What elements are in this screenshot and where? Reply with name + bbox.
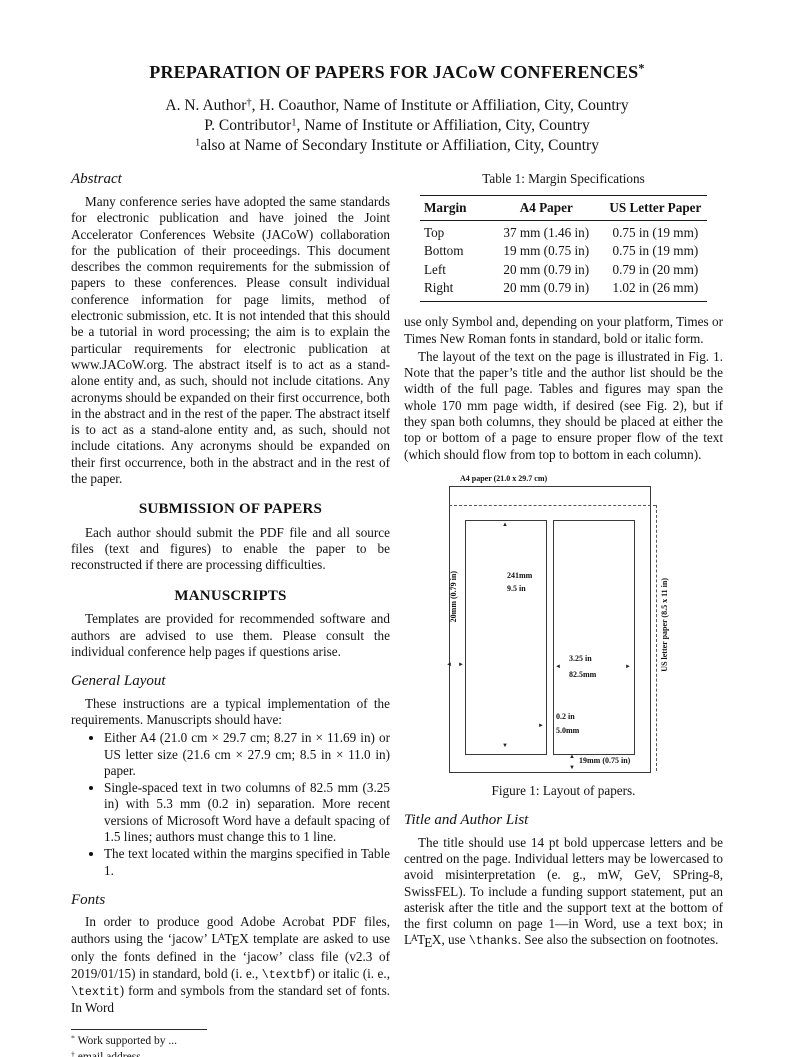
- table-cell: 19 mm (0.75 in): [489, 242, 604, 260]
- footnote-funding: * Work supported by ...: [71, 1033, 390, 1050]
- paper-title: PREPARATION OF PAPERS FOR JACoW CONFEREN…: [0, 62, 794, 83]
- submission-paragraph: Each author should submit the PDF file a…: [71, 525, 390, 574]
- column-width-mm-label: 82.5mm: [569, 669, 596, 682]
- manuscripts-paragraph: Templates are provided for recommended s…: [71, 611, 390, 660]
- right-column: Table 1: Margin Specifications MarginA4 …: [404, 170, 723, 1057]
- figure1-caption: Figure 1: Layout of papers.: [404, 783, 723, 799]
- table-row: Bottom19 mm (0.75 in)0.75 in (19 mm): [420, 242, 707, 260]
- left-text-column-box: [465, 520, 547, 755]
- page-layout-paragraph: The layout of the text on the page is il…: [404, 349, 723, 463]
- general-layout-intro: These instructions are a typical impleme…: [71, 696, 390, 729]
- table-cell: 0.79 in (20 mm): [604, 261, 707, 279]
- table-cell: 0.75 in (19 mm): [604, 221, 707, 243]
- column-gap-in-label: 0.2 in: [556, 711, 575, 724]
- bottom-margin-label: 19mm (0.75 in): [579, 755, 630, 768]
- title-block: PREPARATION OF PAPERS FOR JACoW CONFEREN…: [0, 0, 794, 156]
- footnote-rule: [71, 1029, 207, 1030]
- title-author-list-paragraph: The title should use 14 pt bold uppercas…: [404, 835, 723, 951]
- two-column-body: Abstract Many conference series have ado…: [0, 156, 794, 1057]
- left-margin-left-arrow-icon: ◄: [446, 662, 452, 668]
- table-row: Right20 mm (0.79 in)1.02 in (26 mm): [420, 279, 707, 302]
- table-header: Margin: [420, 195, 489, 220]
- fonts-paragraph: In order to produce good Adobe Acrobat P…: [71, 914, 390, 1016]
- table-cell: Bottom: [420, 242, 489, 260]
- margin-specifications-table: MarginA4 PaperUS Letter PaperTop37 mm (1…: [420, 195, 707, 302]
- table-cell: 0.75 in (19 mm): [604, 242, 707, 260]
- list-item: Either A4 (21.0 cm × 29.7 cm; 8.27 in × …: [104, 730, 390, 779]
- abstract-paragraph: Many conference series have adopted the …: [71, 194, 390, 487]
- latex-logo: LATEX: [211, 931, 248, 946]
- up-arrow-icon: ▲: [502, 522, 508, 528]
- figure1: A4 paper (21.0 x 29.7 cm) ▲ ▼ 241mm 9.5 …: [404, 473, 723, 799]
- figure1-diagram: A4 paper (21.0 x 29.7 cm) ▲ ▼ 241mm 9.5 …: [404, 473, 723, 775]
- column-width-in-label: 3.25 in: [569, 653, 592, 666]
- paper-page: PREPARATION OF PAPERS FOR JACoW CONFEREN…: [0, 0, 794, 1057]
- column-height-mm-label: 241mm: [507, 570, 532, 583]
- symbol-fonts-paragraph: use only Symbol and, depending on your p…: [404, 314, 723, 347]
- down-arrow-icon: ▼: [502, 743, 508, 749]
- latex-logo: LATEX: [404, 932, 441, 947]
- us-letter-paper-label: US letter paper (8.5 x 11 in): [661, 578, 669, 672]
- table-header: US Letter Paper: [604, 195, 707, 220]
- table-cell: 37 mm (1.46 in): [489, 221, 604, 243]
- fonts-heading: Fonts: [71, 891, 390, 910]
- left-column: Abstract Many conference series have ado…: [71, 170, 390, 1057]
- submission-heading: SUBMISSION OF PAPERS: [71, 500, 390, 519]
- table-cell: Right: [420, 279, 489, 302]
- table-row: Left20 mm (0.79 in)0.79 in (20 mm): [420, 261, 707, 279]
- table-cell: Left: [420, 261, 489, 279]
- list-item: The text located within the margins spec…: [104, 846, 390, 879]
- us-letter-right-dashed-line: [656, 505, 657, 771]
- author-line-2: P. Contributor1, Name of Institute or Af…: [0, 116, 794, 136]
- general-layout-bullet-list: Either A4 (21.0 cm × 29.7 cm; 8.27 in × …: [71, 730, 390, 879]
- bottom-margin-up-arrow-icon: ▲: [569, 754, 575, 760]
- bottom-margin-down-arrow-icon: ▼: [569, 765, 575, 771]
- table1-caption: Table 1: Margin Specifications: [404, 171, 723, 187]
- column-gap-arrow-icon: ►: [538, 723, 544, 729]
- title-author-list-heading: Title and Author List: [404, 811, 723, 830]
- footnote-email: † email address: [71, 1049, 390, 1057]
- a4-paper-label: A4 paper (21.0 x 29.7 cm): [460, 473, 547, 486]
- abstract-heading: Abstract: [71, 170, 390, 189]
- left-margin-right-arrow-icon: ►: [458, 662, 464, 668]
- author-line-1: A. N. Author†, H. Coauthor, Name of Inst…: [0, 96, 794, 116]
- author-line-3: 1also at Name of Secondary Institute or …: [0, 136, 794, 156]
- manuscripts-heading: MANUSCRIPTS: [71, 587, 390, 606]
- left-margin-label: 20mm (0.79 in): [450, 571, 458, 622]
- us-letter-top-dashed-line: [449, 505, 656, 506]
- table-row: Top37 mm (1.46 in)0.75 in (19 mm): [420, 221, 707, 243]
- table-cell: 20 mm (0.79 in): [489, 279, 604, 302]
- column-height-in-label: 9.5 in: [507, 583, 526, 596]
- general-layout-heading: General Layout: [71, 672, 390, 691]
- column-width-left-arrow-icon: ◄: [555, 664, 561, 670]
- footnote-block: * Work supported by ... † email address: [71, 1029, 390, 1057]
- table-cell: 1.02 in (26 mm): [604, 279, 707, 302]
- table-cell: 20 mm (0.79 in): [489, 261, 604, 279]
- list-item: Single-spaced text in two columns of 82.…: [104, 780, 390, 845]
- table-header: A4 Paper: [489, 195, 604, 220]
- table-cell: Top: [420, 221, 489, 243]
- author-block: A. N. Author†, H. Coauthor, Name of Inst…: [0, 96, 794, 156]
- column-width-right-arrow-icon: ►: [625, 664, 631, 670]
- column-gap-mm-label: 5.0mm: [556, 725, 579, 738]
